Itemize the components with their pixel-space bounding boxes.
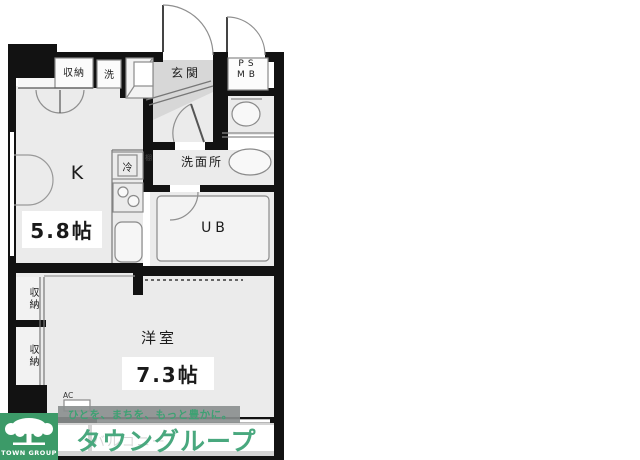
town-group-logo: TOWN GROUP: [0, 413, 58, 460]
kitchen-label: K: [62, 162, 92, 184]
entrance-door-arc: [163, 5, 213, 55]
kitchen-size-label: 5.8帖: [22, 211, 102, 248]
pipe-space-label: PS: [233, 59, 263, 69]
fridge-label: 冷: [118, 159, 137, 174]
town-group-logo-caption: TOWN GROUP: [0, 449, 58, 457]
washroom-label: 洗面所: [165, 153, 239, 170]
stove-burner-icon: [128, 196, 139, 207]
psmb-door-arc: [227, 17, 265, 55]
ac-label: AC: [63, 391, 73, 400]
watermark-brand-band: タウングループ: [58, 423, 274, 456]
stove-burner-icon: [118, 187, 128, 197]
shelf-label: 棚: [145, 153, 152, 163]
storage-left-upper-label: 収納: [16, 281, 40, 317]
storage-left-lower-label: 収納: [16, 338, 40, 374]
watermark-tagline-band: ひとを、まちを、もっと豊かに。: [58, 406, 240, 423]
western-room-size-label: 7.3帖: [122, 357, 214, 390]
washer-label: 洗: [97, 66, 121, 81]
window-left: [10, 132, 14, 256]
watermark-brand: タウングループ: [58, 422, 257, 458]
shoe-cabinet: [134, 62, 153, 86]
meter-box-label: MB: [233, 70, 263, 80]
storage-top-label: 収納: [55, 64, 93, 79]
watermark-tagline: ひとを、まちを、もっと豊かに。: [58, 407, 233, 422]
kitchen-sink-icon: [115, 222, 142, 262]
floorplan: 収納 洗 玄関 PS MB 冷 棚 洗面所 K 5.8帖 UB 収納 収納 洋室…: [0, 0, 640, 460]
unit-bath-label: UB: [192, 220, 238, 236]
western-room-label: 洋室: [128, 327, 190, 348]
entrance-label: 玄関: [160, 64, 212, 81]
toilet-icon: [232, 102, 260, 126]
